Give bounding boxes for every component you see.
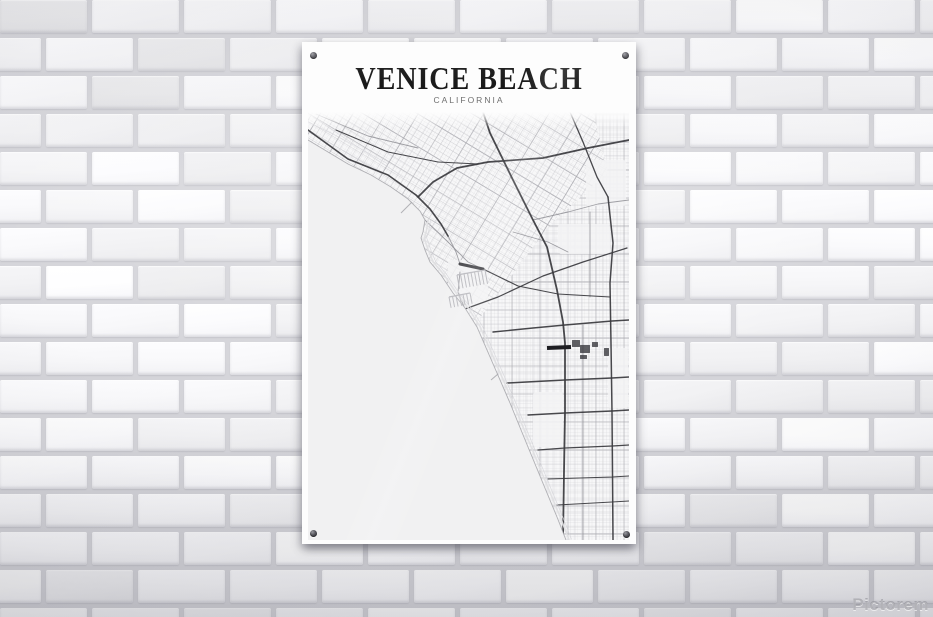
brick [368,0,455,33]
brick [644,76,731,109]
brick [552,608,639,617]
city-map [308,112,629,540]
brick [920,304,933,337]
brick [92,152,179,185]
brick [138,114,225,147]
brick [184,532,271,565]
brick [644,456,731,489]
brick [46,494,133,527]
brick [46,570,133,603]
brick [0,570,41,603]
brick [0,0,87,33]
brick [874,190,933,223]
brick [0,266,41,299]
brick [782,114,869,147]
brick [414,570,501,603]
brick [92,532,179,565]
brick [736,76,823,109]
brick [322,570,409,603]
brick [184,76,271,109]
brick [184,380,271,413]
brick [368,608,455,617]
brick [46,190,133,223]
brick [0,342,41,375]
brick [828,456,915,489]
brick [920,456,933,489]
brick [828,304,915,337]
brick [92,0,179,33]
brick [506,570,593,603]
brick [644,0,731,33]
brick [184,456,271,489]
brick [138,266,225,299]
brick [736,304,823,337]
brick [782,38,869,71]
brick [644,304,731,337]
standoff-screw-top-right [622,52,629,59]
brick [874,114,933,147]
brick [690,342,777,375]
brick [46,114,133,147]
brick [828,0,915,33]
brick [92,380,179,413]
brick [184,0,271,33]
brick [276,608,363,617]
brick [184,608,271,617]
brick [138,38,225,71]
brick [644,228,731,261]
standoff-screw-top-left [310,52,317,59]
brick [736,152,823,185]
brick [828,76,915,109]
brick [690,38,777,71]
brick [460,0,547,33]
brick [138,342,225,375]
brick [736,532,823,565]
brick [920,76,933,109]
brick [920,380,933,413]
brick [828,152,915,185]
watermark: Pictorem [852,595,929,615]
brick [782,190,869,223]
brick [874,342,933,375]
brick [920,532,933,565]
brick [46,266,133,299]
brick [874,494,933,527]
brick [874,266,933,299]
poster-subtitle: CALIFORNIA [302,95,636,105]
brick [828,228,915,261]
brick [874,38,933,71]
brick [0,380,87,413]
brick [690,418,777,451]
brick [920,152,933,185]
product-photo: VENICE BEACH CALIFORNIA Pictorem [0,0,933,617]
brick [920,0,933,33]
brick [46,342,133,375]
brick [138,494,225,527]
brick [138,418,225,451]
brick [920,228,933,261]
brick [138,570,225,603]
brick [184,152,271,185]
brick [0,152,87,185]
brick [0,456,87,489]
brick [690,570,777,603]
brick [644,380,731,413]
brick [0,608,87,617]
brick [690,114,777,147]
brick [92,456,179,489]
poster-title: VENICE BEACH [322,62,616,94]
brick [690,266,777,299]
brick [0,38,41,71]
standoff-screw-bottom-left [310,530,317,537]
brick [736,456,823,489]
brick [782,342,869,375]
brick [230,570,317,603]
standoff-screw-bottom-right [623,531,630,538]
brick [0,494,41,527]
brick [736,380,823,413]
brick [828,532,915,565]
brick [92,608,179,617]
brick [0,228,87,261]
brick [598,570,685,603]
brick [782,418,869,451]
brick [92,304,179,337]
brick [184,228,271,261]
brick [0,304,87,337]
brick [0,114,41,147]
brick [736,608,823,617]
brick [644,532,731,565]
brick [782,494,869,527]
brick [46,418,133,451]
brick [828,380,915,413]
brick [736,228,823,261]
brick [460,608,547,617]
brick [782,266,869,299]
brick [0,532,87,565]
brick [690,190,777,223]
brick [644,152,731,185]
brick [644,608,731,617]
brick [46,38,133,71]
brick [92,76,179,109]
brick [552,0,639,33]
brick [92,228,179,261]
brick [690,494,777,527]
brick [0,418,41,451]
brick [0,76,87,109]
brick [184,304,271,337]
brick [736,0,823,33]
brick [276,0,363,33]
brick [0,190,41,223]
brick [138,190,225,223]
brick [874,418,933,451]
map-poster: VENICE BEACH CALIFORNIA [302,42,636,544]
